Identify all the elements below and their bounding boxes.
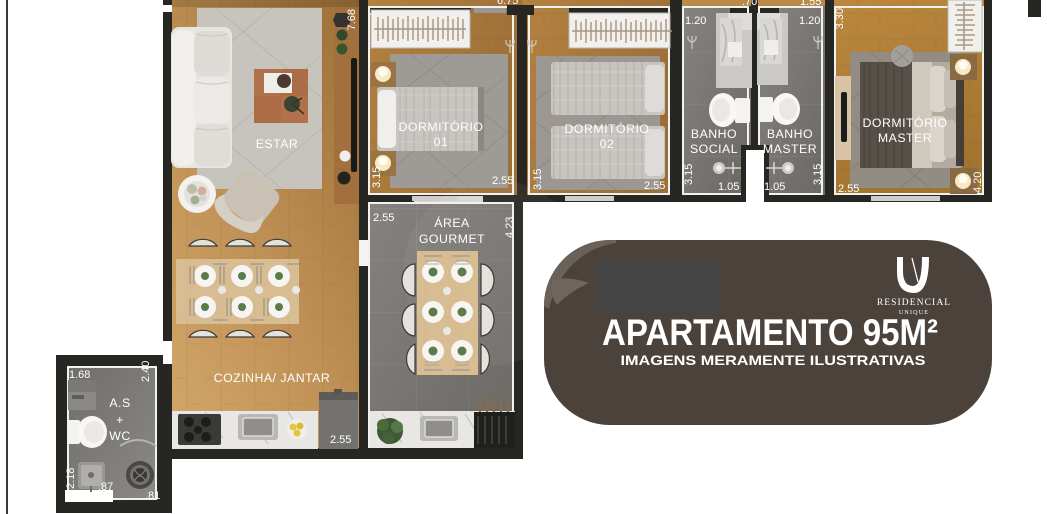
svg-text:MASTER: MASTER bbox=[878, 131, 932, 145]
svg-text:3.15: 3.15 bbox=[371, 167, 383, 188]
svg-text:COZINHA/ JANTAR: COZINHA/ JANTAR bbox=[214, 371, 331, 385]
svg-text:3.30: 3.30 bbox=[834, 8, 846, 29]
svg-text:SOCIAL: SOCIAL bbox=[690, 142, 738, 156]
svg-text:A.S: A.S bbox=[109, 396, 130, 410]
svg-text:.81: .81 bbox=[145, 490, 160, 502]
svg-text:2.40: 2.40 bbox=[140, 361, 152, 382]
svg-text:3.15: 3.15 bbox=[812, 164, 824, 185]
svg-text:.70: .70 bbox=[742, 0, 757, 8]
svg-text:RESIDENCIAL: RESIDENCIAL bbox=[877, 298, 951, 308]
svg-text:+: + bbox=[116, 413, 124, 427]
svg-text:7.68: 7.68 bbox=[346, 9, 358, 30]
svg-text:1.55: 1.55 bbox=[800, 0, 821, 8]
svg-text:2.55: 2.55 bbox=[644, 180, 665, 192]
svg-text:MASTER: MASTER bbox=[763, 142, 817, 156]
svg-text:1.20: 1.20 bbox=[685, 15, 706, 27]
svg-text:6.75: 6.75 bbox=[497, 0, 518, 7]
svg-text:1.68: 1.68 bbox=[69, 369, 90, 381]
svg-text:2.55: 2.55 bbox=[838, 183, 859, 195]
svg-text:4.20: 4.20 bbox=[972, 172, 984, 193]
svg-text:DORMITÓRIO: DORMITÓRIO bbox=[863, 115, 948, 130]
svg-text:IMAGENS MERAMENTE ILUSTRATIVAS: IMAGENS MERAMENTE ILUSTRATIVAS bbox=[621, 352, 926, 368]
svg-text:2.55: 2.55 bbox=[492, 175, 513, 187]
svg-text:1.05: 1.05 bbox=[718, 181, 739, 193]
svg-text:01: 01 bbox=[434, 135, 449, 149]
svg-text:2.55: 2.55 bbox=[373, 212, 394, 224]
svg-text:DORMITÓRIO: DORMITÓRIO bbox=[565, 121, 650, 136]
svg-text:1.05: 1.05 bbox=[764, 181, 785, 193]
svg-text:GOURMET: GOURMET bbox=[419, 232, 485, 246]
svg-text:APARTAMENTO 95M²: APARTAMENTO 95M² bbox=[602, 312, 938, 353]
svg-text:ESTAR: ESTAR bbox=[256, 137, 299, 151]
svg-text:DORMITÓRIO: DORMITÓRIO bbox=[399, 119, 484, 134]
svg-text:1.20: 1.20 bbox=[799, 15, 820, 27]
svg-text:BANHO: BANHO bbox=[767, 127, 813, 141]
svg-text:02: 02 bbox=[600, 137, 615, 151]
svg-text:BANHO: BANHO bbox=[691, 127, 737, 141]
svg-text:.87: .87 bbox=[98, 481, 113, 493]
svg-text:3.15: 3.15 bbox=[532, 169, 544, 190]
svg-text:3.15: 3.15 bbox=[683, 164, 695, 185]
svg-text:2.18: 2.18 bbox=[65, 468, 77, 489]
svg-text:4.23: 4.23 bbox=[504, 217, 516, 238]
svg-text:ÁREA: ÁREA bbox=[434, 215, 470, 230]
svg-text:WC: WC bbox=[109, 429, 131, 443]
svg-text:2.55: 2.55 bbox=[330, 434, 351, 446]
